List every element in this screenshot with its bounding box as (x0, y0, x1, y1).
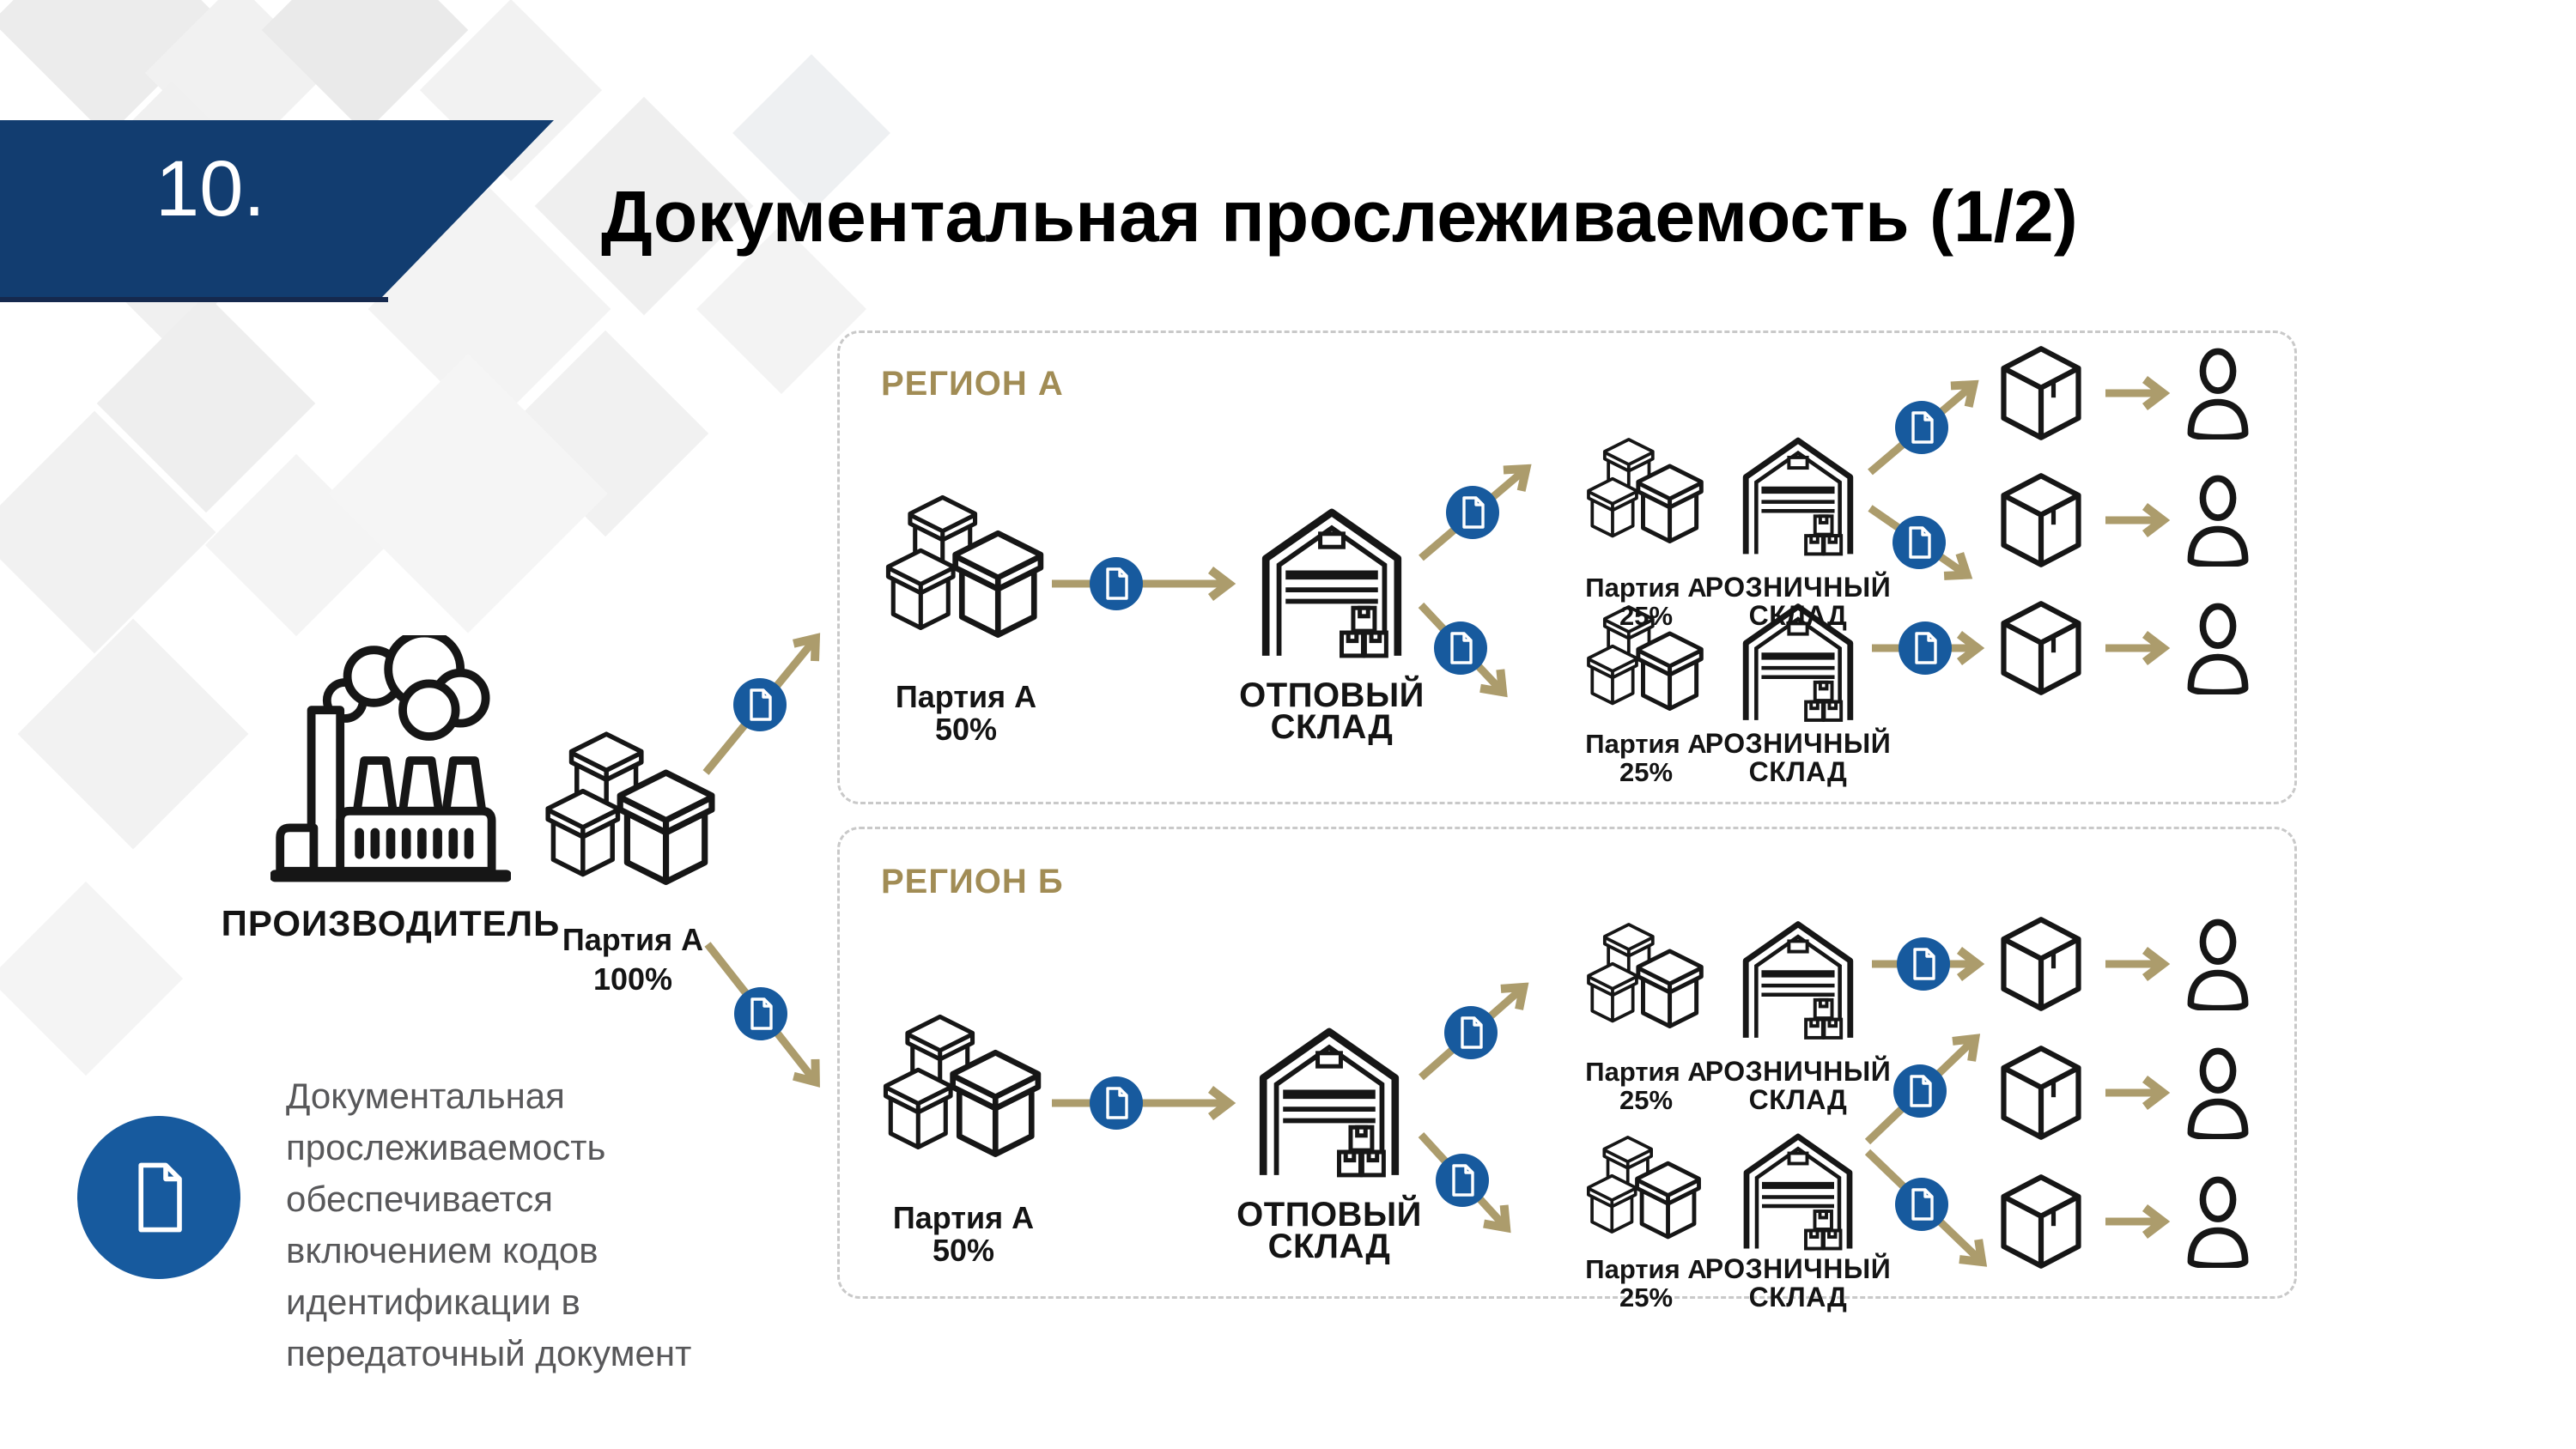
package-icon (2004, 476, 2079, 565)
batch-boxes-icon (1589, 440, 1701, 542)
batch-boxes-icon (885, 1016, 1037, 1154)
warehouse-icon (1266, 512, 1398, 656)
document-icon (1090, 557, 1143, 610)
person-icon (2190, 478, 2245, 564)
note-document-badge (77, 1116, 240, 1279)
batch-50-label-b: Партия А 50% (878, 1202, 1049, 1267)
document-icon (1434, 621, 1487, 675)
document-icon (1895, 401, 1948, 454)
retail-warehouse-bottom-label-a: РОЗНИЧНЫЙ СКЛАД (1669, 730, 1927, 786)
factory-icon (276, 634, 507, 876)
document-icon (1446, 486, 1499, 539)
document-icon (1090, 1076, 1143, 1130)
package-icon (2004, 349, 2079, 438)
package-icon (2004, 919, 2079, 1009)
wholesale-warehouse-label-b: ОТПОВЫЙ СКЛАД (1205, 1199, 1454, 1263)
document-icon (1897, 937, 1950, 991)
person-icon (2190, 1051, 2245, 1137)
package-icon (2004, 603, 2079, 693)
batch-boxes-icon (1589, 925, 1701, 1027)
document-icon (1895, 1178, 1948, 1231)
warehouse-icon (1746, 440, 1850, 554)
retail-warehouse-top-label-b: РОЗНИЧНЫЙ СКЛАД (1669, 1058, 1927, 1114)
person-icon (2190, 606, 2245, 692)
warehouse-icon (1263, 1032, 1395, 1175)
document-icon (733, 678, 787, 731)
document-icon (734, 987, 787, 1040)
manufacturer-label: ПРОИЗВОДИТЕЛЬ (219, 903, 562, 944)
batch-boxes-icon (888, 497, 1040, 634)
batch-50-label-a: Партия А 50% (880, 681, 1052, 746)
batch-boxes-icon (548, 734, 712, 882)
person-icon (2190, 351, 2245, 437)
person-icon (2190, 922, 2245, 1008)
person-icon (2190, 1179, 2245, 1265)
retail-warehouse-bottom-label-b: РОЗНИЧНЫЙ СКЛАД (1669, 1255, 1927, 1312)
batch-boxes-icon (1589, 1137, 1699, 1237)
batch-100-label: Партия А 100% (547, 920, 719, 999)
wholesale-warehouse-label-a: ОТПОВЫЙ СКЛАД (1207, 680, 1456, 743)
document-icon (1444, 1006, 1498, 1059)
document-icon (125, 1158, 193, 1237)
warehouse-icon (1747, 1137, 1850, 1249)
retail-warehouse-top-label-a: РОЗНИЧНЫЙ СКЛАД (1669, 573, 1927, 630)
package-icon (2004, 1177, 2079, 1266)
note-text: Документальная прослеживаемость обеспечи… (286, 1070, 784, 1379)
slide: 10. Документальная прослеживаемость (1/2… (0, 0, 2576, 1449)
warehouse-icon (1746, 925, 1850, 1038)
document-icon (1893, 516, 1946, 569)
package-icon (2004, 1048, 2079, 1137)
